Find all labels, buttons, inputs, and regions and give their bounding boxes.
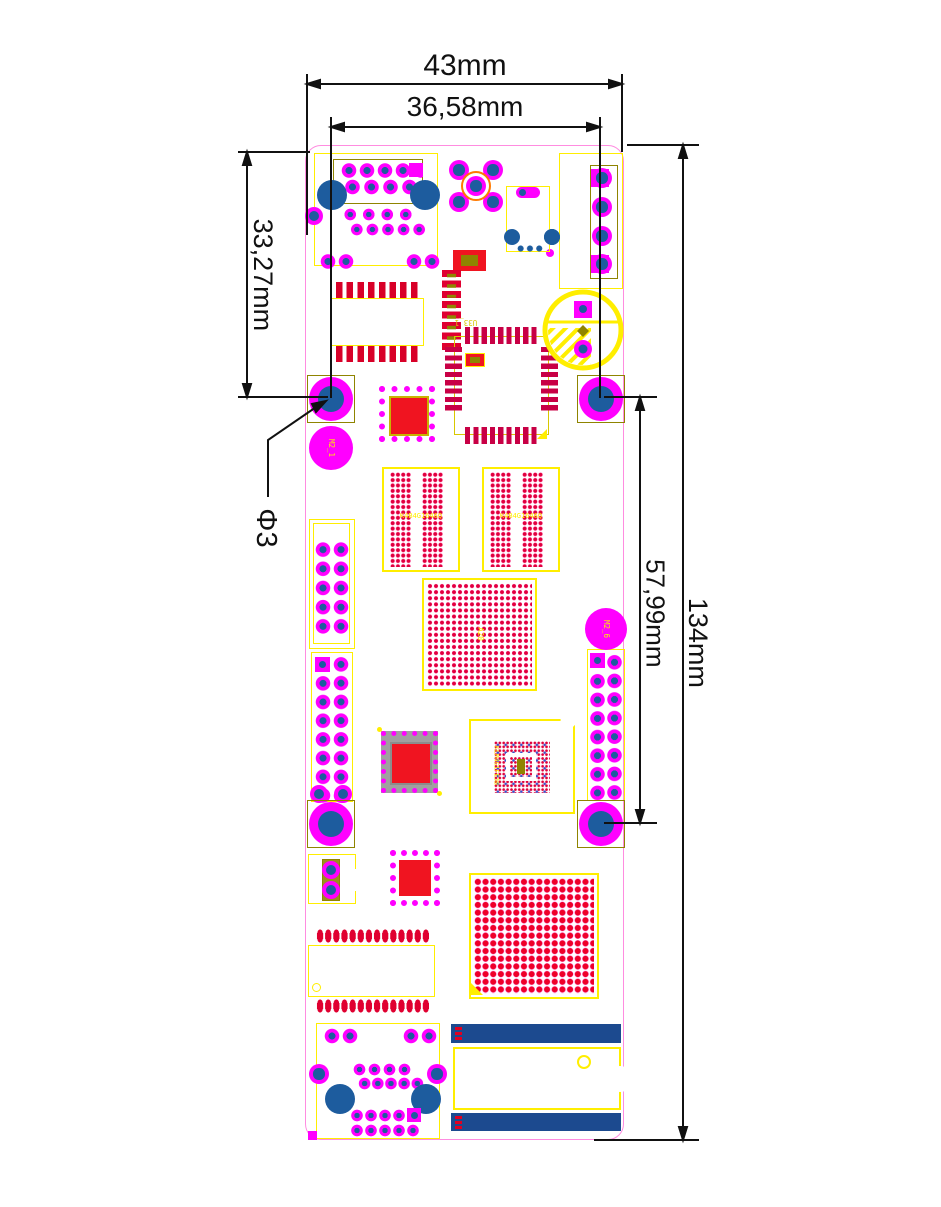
mounting-hole-top-left <box>307 375 355 423</box>
pad-row <box>465 427 538 444</box>
ddr-label: K4B4G1646Q <box>485 511 557 521</box>
pad-row <box>349 222 427 237</box>
dim-width-total: 43mm <box>390 49 540 82</box>
ic-outline <box>454 336 549 435</box>
pad-column <box>606 653 623 802</box>
pcb-board: U33_1 K4B4G1646Q K4B4G1646Q A20 <box>305 145 624 1140</box>
pad-row <box>405 253 441 270</box>
pin1-circle <box>312 983 321 992</box>
bga-bottom <box>469 873 599 999</box>
qfn-ic-gray <box>381 731 438 793</box>
soic16-ic <box>331 282 426 362</box>
button-center-pad <box>466 176 486 196</box>
shield-hole-right <box>410 180 440 210</box>
slot-notch <box>607 1066 633 1092</box>
outline-notch <box>345 869 357 891</box>
header-pad <box>592 197 612 217</box>
dim-height-total: 134mm <box>682 593 712 693</box>
soic-wide-bottom <box>308 928 436 1014</box>
emmc-bga: KLM4G1FE3B <box>469 719 575 814</box>
pad-row <box>350 1123 420 1138</box>
pad-row <box>323 1027 359 1045</box>
usb-connector-bottom <box>316 1023 440 1139</box>
mounting-hole-bottom-left <box>307 800 355 848</box>
dim-hole-span-y: 57,99mm <box>641 550 670 676</box>
pad-row <box>402 1027 438 1045</box>
bga-grid <box>474 878 594 994</box>
usb-connector-top <box>314 153 438 266</box>
crystal-footprint <box>506 186 550 252</box>
pin1-triangle <box>471 983 483 995</box>
cpu-label: A20 <box>475 612 485 656</box>
dim-hole-span-x: 36,58mm <box>375 92 555 123</box>
side-pad <box>305 207 323 225</box>
pad-row <box>316 998 430 1014</box>
header-2x5-left <box>309 519 355 649</box>
crystal-hole <box>544 229 560 245</box>
header-pad <box>592 226 612 246</box>
header-pad <box>592 168 612 188</box>
pad-row <box>465 327 538 344</box>
corner-notch <box>560 710 580 730</box>
header-2x8-left <box>311 652 353 802</box>
ic-body <box>399 860 431 896</box>
pad-row <box>516 244 544 253</box>
cpu-bga: A20 <box>422 578 537 691</box>
pad-square <box>409 163 423 177</box>
ic-body <box>308 945 435 997</box>
pad-row <box>343 179 419 195</box>
pad-column <box>541 347 558 411</box>
pin-pad <box>322 861 340 879</box>
side-pad <box>309 1064 329 1084</box>
mounting-hole-bottom-right <box>577 800 625 848</box>
connector-area-top-right <box>559 153 623 289</box>
qfp-silkscreen-label: U33_1 <box>436 317 496 327</box>
ic-body <box>389 396 429 436</box>
ic-body <box>331 298 424 346</box>
pad-row <box>350 1108 406 1123</box>
sd-slot-pad-top <box>451 1024 621 1043</box>
ddr-memory-right: K4B4G1646Q <box>482 467 560 572</box>
m2-label-right: M2_6 <box>601 599 611 659</box>
side-pad <box>427 1064 447 1084</box>
mounting-hole-top-right <box>577 375 625 423</box>
dim-hole-offset-y: 33,27mm <box>247 210 277 340</box>
ddr-memory-left: K4B4G1646Q <box>382 467 460 572</box>
pad-row <box>341 207 415 222</box>
ic-body <box>390 742 432 785</box>
corner-pad <box>308 1131 317 1140</box>
pad-grid <box>314 540 350 636</box>
qfn-ic <box>379 386 435 442</box>
pin1-triangle <box>537 429 547 439</box>
pad-row <box>316 928 430 944</box>
sd-slot-body <box>453 1047 621 1110</box>
header-pad <box>592 254 612 274</box>
qfp-ic-bottom <box>390 850 440 906</box>
pad-row <box>352 1062 412 1077</box>
pad-row <box>336 346 420 362</box>
ddr-label: K4B4G1646Q <box>385 511 457 521</box>
crystal-hole <box>504 229 520 245</box>
emmc-label: KLM4G1FE3B <box>493 731 502 801</box>
qfp48-ic <box>445 327 558 444</box>
pad-column <box>332 655 350 805</box>
pad-column <box>445 347 462 411</box>
pad-row <box>336 282 420 298</box>
smd-component <box>453 250 486 271</box>
pad-column <box>589 672 606 802</box>
m2-label-left: M2_1 <box>326 418 336 478</box>
shield-hole-left <box>317 180 347 210</box>
header-2x8-right <box>587 649 625 801</box>
pad-row <box>319 253 355 270</box>
connector-2pin <box>308 854 356 904</box>
pin-pad <box>322 881 340 899</box>
slot-hole <box>577 1055 591 1069</box>
dim-hole-diameter: Φ3 <box>249 491 281 565</box>
pcb-dimension-drawing: 43mm 36,58mm 33,27mm 57,99mm 134mm Φ3 <box>0 0 941 1207</box>
button-footprint <box>444 158 514 226</box>
sd-slot-pad-bottom <box>451 1113 621 1131</box>
